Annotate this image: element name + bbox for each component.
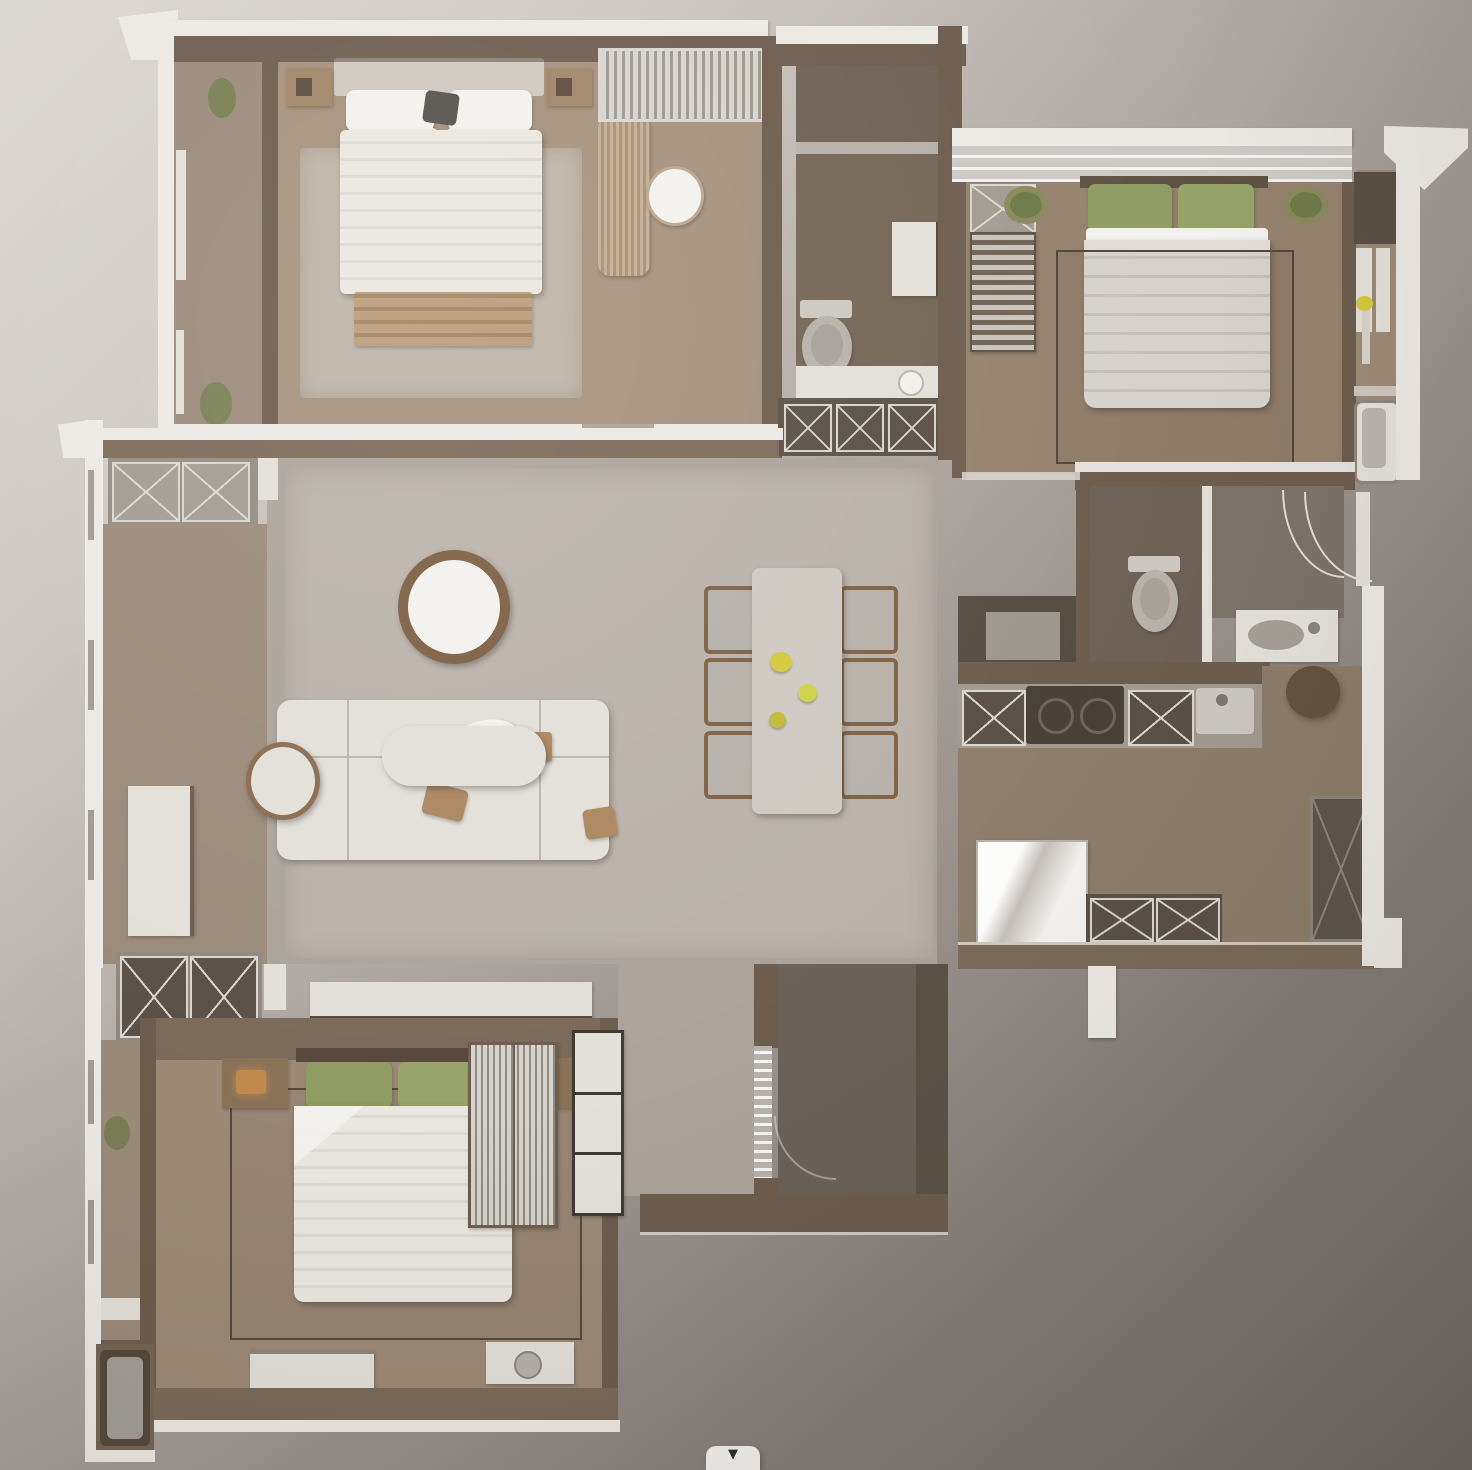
fridge	[976, 840, 1088, 946]
x-cabinet-door	[888, 404, 936, 452]
x-cabinet-door	[182, 462, 250, 522]
closet-panel	[176, 330, 184, 414]
bath2-vanity	[1236, 610, 1338, 662]
plant	[208, 78, 236, 118]
scroll-down-button[interactable]: ▼	[706, 1446, 760, 1470]
closet-panel	[176, 150, 186, 280]
round-wall-decor	[398, 550, 510, 664]
bedroom2-rug-outline	[1056, 250, 1294, 464]
entry-white-box	[258, 458, 278, 500]
vanity-sink	[898, 370, 924, 396]
kitchen-sink	[1196, 688, 1254, 734]
niche-shelf	[1354, 386, 1396, 396]
terrace-bottom-wall	[640, 1194, 948, 1235]
coffee-table	[382, 726, 546, 786]
bed1-duvet	[340, 130, 542, 294]
x-cabinet-door	[1156, 898, 1220, 942]
bed1-nightstand-right	[546, 68, 592, 106]
bed2-green-pillow	[1088, 184, 1172, 232]
bed1-pillow	[346, 90, 434, 132]
mirror-cabinet	[892, 222, 940, 296]
wall-stub	[1088, 966, 1116, 1038]
round-side-table	[246, 742, 320, 820]
bedroom2-left-wall	[952, 182, 966, 478]
outer-wall-corner	[1374, 918, 1402, 968]
entry-door-leaf	[1356, 492, 1370, 586]
terrace-right-wall	[916, 964, 948, 1232]
hall-floor-extension	[618, 964, 754, 1196]
round-table	[1286, 666, 1340, 718]
louver-wardrobe	[468, 1042, 558, 1228]
roof-edge-bottom-left	[85, 1450, 155, 1462]
bed1-accent-pillow	[422, 90, 460, 126]
plant	[1284, 186, 1328, 224]
glass-partition	[962, 472, 1080, 480]
laundry-niche-floor	[796, 66, 938, 148]
window-slit	[88, 470, 94, 540]
window-slit	[88, 1200, 94, 1264]
cooktop	[1026, 686, 1124, 744]
laundry-shelf	[796, 142, 938, 154]
bedroom3-bottom-wall	[140, 1388, 618, 1422]
dining-chair	[840, 658, 898, 726]
outer-wall-right-top	[1396, 140, 1420, 480]
kitchen-back-wall	[958, 662, 1270, 684]
niche-panel	[1376, 248, 1390, 332]
outer-wall-right-mid	[1362, 586, 1384, 966]
entry-wall-upper	[754, 964, 778, 1048]
plant	[200, 382, 232, 426]
drawer-tower	[572, 1030, 624, 1216]
living-top-wall	[103, 440, 779, 458]
x-cabinet-door	[1090, 898, 1154, 942]
powder-mirror	[986, 612, 1060, 660]
bed1-nightstand-left	[286, 68, 332, 106]
dining-table	[752, 568, 842, 814]
bed1-pillow	[448, 90, 532, 132]
x-cabinet-door	[112, 462, 180, 522]
bedroom1-curtain-wardrobe	[598, 48, 768, 122]
bathtub-small	[1354, 400, 1400, 484]
outer-wall-left-top	[158, 20, 174, 440]
sideboard	[310, 982, 592, 1020]
hall-white-box	[264, 964, 286, 1010]
glass-door	[754, 1046, 772, 1180]
bedroom3-bench	[250, 1350, 374, 1390]
plant	[104, 1116, 130, 1150]
kitchen-bottom-wall	[958, 942, 1382, 969]
bedroom1-inner-wall	[262, 62, 278, 440]
living-top-wall-white	[103, 428, 783, 440]
bedroom2-bookshelf	[970, 232, 1036, 352]
toilet	[1132, 570, 1178, 632]
dining-chair	[840, 731, 898, 799]
x-cabinet-door	[836, 404, 884, 452]
x-cabinet-door	[784, 404, 832, 452]
yellow-flowers	[798, 684, 817, 702]
floor-plan-scene: ▼	[0, 0, 1472, 1470]
bed3-green-pillow	[306, 1062, 392, 1108]
yellow-flower	[1356, 296, 1373, 311]
bath2-partition	[1202, 486, 1212, 664]
bath2-left-wall	[1076, 486, 1090, 664]
bed3-nightstand-left	[222, 1058, 288, 1108]
x-cabinet-door	[1128, 690, 1194, 746]
bed2-green-pillow	[1178, 184, 1254, 232]
bedroom1-chair	[646, 166, 704, 226]
flower-vase	[1362, 306, 1370, 364]
bed1-foot-bench	[354, 292, 532, 346]
niche-cabinet	[1354, 172, 1396, 244]
window-slit	[88, 1060, 94, 1124]
plant	[1004, 186, 1048, 224]
wood-stool	[582, 806, 618, 841]
x-cabinet-door	[962, 690, 1026, 746]
yellow-flowers	[770, 652, 792, 672]
roof-edge-top	[168, 20, 768, 36]
yellow-flowers	[769, 712, 786, 728]
tv-console	[128, 786, 194, 936]
window-slit	[88, 810, 94, 880]
dining-chair	[840, 586, 898, 654]
window-slit	[88, 640, 94, 710]
bedroom1-desk	[598, 116, 650, 276]
roof-edge-bedroom2	[952, 128, 1352, 146]
roof-edge-bottom	[140, 1420, 620, 1432]
bathtub	[100, 1350, 150, 1446]
bedroom2-bottom-ledge	[1075, 462, 1355, 472]
bedroom1-right-wall	[762, 36, 782, 460]
bedroom3-tray	[486, 1342, 574, 1384]
scroll-down-icon: ▼	[728, 1446, 738, 1464]
